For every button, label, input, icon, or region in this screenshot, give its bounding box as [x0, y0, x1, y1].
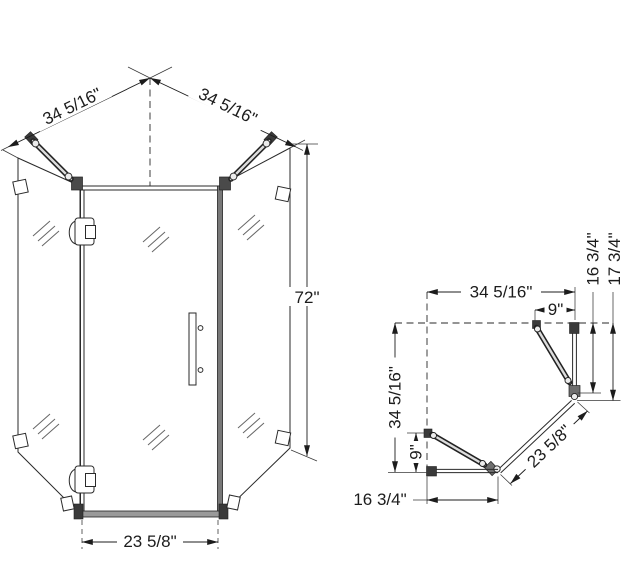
glass-panels — [3, 140, 305, 514]
plan-width-left-label: 34 5/16" — [385, 366, 404, 429]
plan-panel-bottom-label: 16 3/4" — [353, 490, 406, 509]
door-hinge-top — [69, 218, 95, 245]
front-width-left-label: 34 5/16" — [40, 84, 105, 129]
front-width-right-label: 34 5/16" — [195, 84, 260, 129]
dimension-plan-door: 23 5/8" — [501, 402, 590, 486]
plan-panel-right-label: 16 3/4" — [583, 232, 602, 285]
front-view: 34 5/16" 34 5/16" 72" — [1, 67, 325, 551]
right-glass-panel — [222, 148, 290, 514]
dimension-front-width-left: 34 5/16" — [1, 67, 172, 151]
dimension-plan-panel-bottom: 16 3/4" — [347, 477, 498, 509]
glass-shine-marks — [33, 215, 264, 450]
plan-offset-left-label: 9" — [406, 444, 425, 460]
front-height-label: 72" — [295, 288, 320, 307]
dimension-front-height: 72" — [289, 144, 325, 461]
plan-total-right-label: 17 3/4" — [605, 232, 624, 285]
left-glass-panel — [18, 158, 80, 514]
plan-door-label: 23 5/8" — [523, 421, 575, 471]
dimension-plan-offset-top: 9" — [535, 300, 575, 325]
dimension-plan-panel-right: 16 3/4" — [578, 226, 603, 393]
dimension-plan-offset-left: 9" — [406, 433, 429, 472]
plan-view: 34 5/16" 9" 16 3/4" — [347, 226, 624, 509]
drawing-canvas: 34 5/16" 34 5/16" 72" — [0, 0, 627, 574]
door-handle — [189, 313, 203, 385]
support-bar-right — [230, 132, 277, 180]
plan-support-bar-top — [533, 321, 572, 384]
support-bar-left — [25, 132, 72, 180]
front-door-width-label: 23 5/8" — [123, 532, 176, 551]
dimension-front-door-width: 23 5/8" — [82, 520, 218, 551]
door-bottom-sill — [80, 511, 222, 517]
shower-door — [72, 78, 231, 519]
plan-width-top-label: 34 5/16" — [470, 282, 533, 301]
plan-offset-top-label: 9" — [548, 300, 564, 319]
shower-enclosure-technical-drawing: 34 5/16" 34 5/16" 72" — [0, 0, 627, 574]
door-right-stile — [218, 186, 223, 512]
plan-right-panel — [569, 323, 580, 400]
plan-support-bar-bottom — [424, 429, 486, 467]
door-hinge-bottom — [69, 466, 95, 493]
dimension-front-width-right: 34 5/16" — [128, 67, 303, 151]
